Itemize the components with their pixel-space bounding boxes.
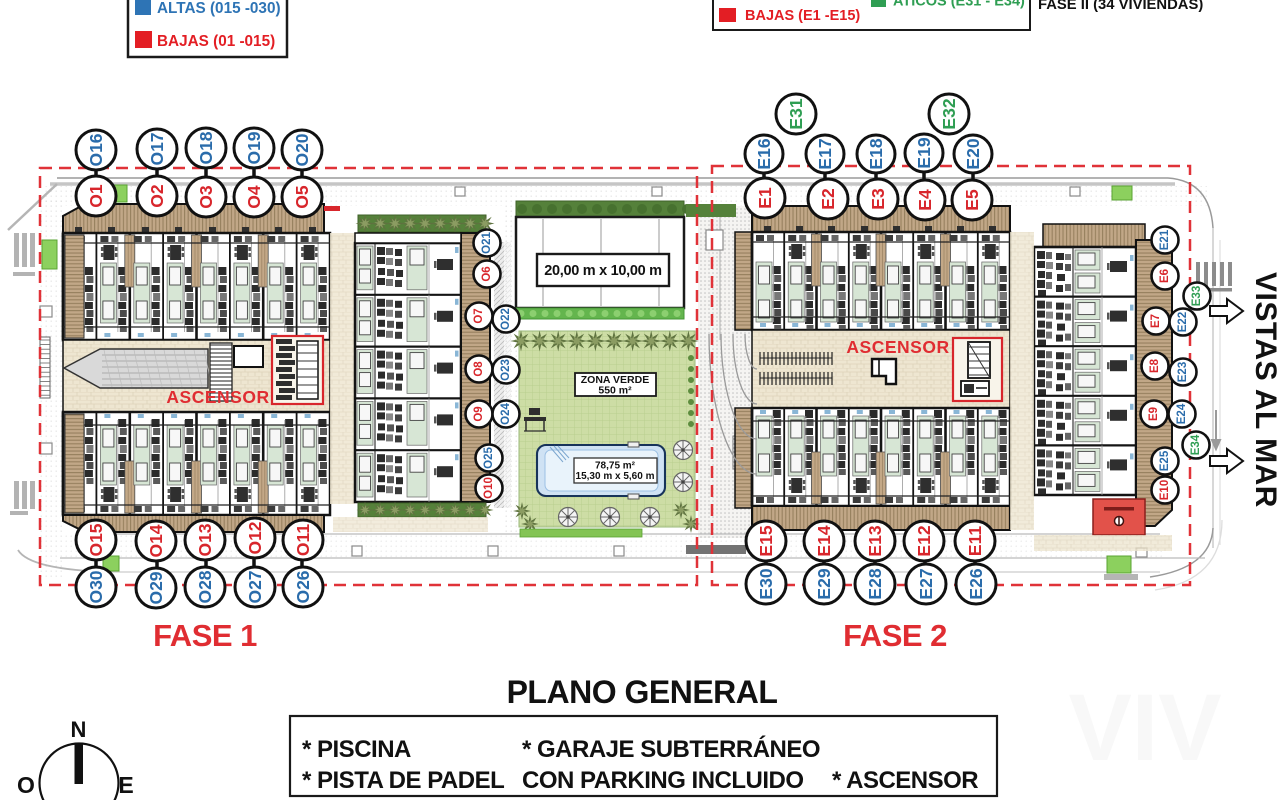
svg-text:PLANO GENERAL: PLANO GENERAL [507, 674, 778, 710]
svg-text:VISTAS AL MAR: VISTAS AL MAR [1249, 272, 1280, 508]
svg-text:E17: E17 [815, 138, 835, 169]
svg-text:E3: E3 [868, 188, 888, 210]
svg-text:O25: O25 [483, 447, 495, 469]
svg-text:* PISCINA: * PISCINA [302, 736, 411, 763]
svg-text:E4: E4 [915, 189, 935, 211]
svg-text:BAJAS (E1 -E15): BAJAS (E1 -E15) [745, 8, 860, 24]
svg-text:O5: O5 [292, 185, 312, 209]
svg-text:E27: E27 [916, 568, 936, 599]
svg-text:E23: E23 [1177, 362, 1189, 382]
svg-text:20,00 m x 10,00 m: 20,00 m x 10,00 m [544, 263, 661, 279]
svg-text:ATICOS (E31 - E34): ATICOS (E31 - E34) [893, 0, 1025, 10]
svg-text:O22: O22 [500, 308, 512, 330]
svg-text:O26: O26 [293, 570, 313, 603]
svg-text:E28: E28 [865, 568, 885, 599]
svg-text:O20: O20 [292, 133, 312, 166]
svg-text:O7: O7 [473, 308, 485, 323]
svg-text:E8: E8 [1149, 358, 1161, 373]
svg-text:O13: O13 [195, 523, 215, 556]
svg-text:FASE II (34 VIVIENDAS): FASE II (34 VIVIENDAS) [1038, 0, 1203, 13]
svg-text:E16: E16 [754, 138, 774, 169]
svg-text:E10: E10 [1159, 480, 1171, 500]
svg-text:E25: E25 [1159, 450, 1171, 471]
svg-text:O1: O1 [86, 184, 106, 208]
svg-text:15,30 m x 5,60 m: 15,30 m x 5,60 m [576, 471, 655, 482]
svg-text:E6: E6 [1159, 269, 1171, 283]
svg-text:O17: O17 [147, 132, 167, 165]
svg-text:ASCENSOR: ASCENSOR [846, 337, 949, 357]
svg-text:O8: O8 [473, 361, 485, 377]
svg-text:O6: O6 [481, 266, 493, 281]
svg-text:E29: E29 [814, 568, 834, 599]
svg-text:O24: O24 [500, 403, 512, 425]
svg-text:E9: E9 [1148, 407, 1160, 421]
svg-text:E15: E15 [756, 525, 776, 556]
svg-text:E11: E11 [965, 526, 985, 556]
svg-text:E18: E18 [866, 138, 886, 169]
svg-text:E21: E21 [1159, 229, 1171, 250]
svg-text:O10: O10 [483, 477, 495, 499]
svg-text:O19: O19 [244, 131, 264, 164]
svg-text:ASCENSOR: ASCENSOR [166, 387, 269, 407]
svg-text:E34: E34 [1190, 434, 1202, 455]
svg-text:O14: O14 [146, 524, 166, 557]
svg-text:E22: E22 [1177, 312, 1189, 332]
svg-text:O4: O4 [244, 185, 264, 209]
svg-text:O18: O18 [196, 131, 216, 164]
svg-text:E7: E7 [1150, 314, 1162, 328]
svg-text:E5: E5 [962, 189, 982, 211]
svg-text:O29: O29 [146, 571, 166, 604]
svg-text:O2: O2 [147, 184, 167, 208]
svg-text:E24: E24 [1176, 403, 1188, 424]
svg-text:O11: O11 [293, 524, 313, 556]
svg-text:E14: E14 [814, 525, 834, 556]
svg-text:CON PARKING INCLUIDO: CON PARKING INCLUIDO [522, 767, 804, 794]
svg-text:78,75 m²: 78,75 m² [595, 461, 636, 472]
svg-text:* GARAJE SUBTERRÁNEO: * GARAJE SUBTERRÁNEO [522, 735, 820, 763]
svg-text:O30: O30 [86, 570, 106, 603]
svg-text:O27: O27 [245, 570, 265, 603]
svg-text:550 m²: 550 m² [598, 385, 632, 397]
svg-text:E31: E31 [786, 98, 806, 129]
svg-text:VIV: VIV [1068, 675, 1221, 781]
svg-text:O28: O28 [195, 570, 215, 603]
svg-text:E1: E1 [755, 187, 775, 209]
svg-text:FASE 1: FASE 1 [153, 618, 257, 653]
svg-text:O16: O16 [86, 133, 106, 166]
svg-text:E26: E26 [966, 568, 986, 599]
svg-text:O9: O9 [473, 406, 485, 421]
svg-text:* ASCENSOR: * ASCENSOR [832, 767, 978, 794]
svg-text:O15: O15 [86, 523, 106, 556]
svg-text:E13: E13 [865, 525, 885, 556]
svg-text:N: N [71, 717, 87, 742]
svg-text:O23: O23 [500, 359, 512, 381]
svg-text:ALTAS (015 -030): ALTAS (015 -030) [157, 0, 281, 17]
svg-text:FASE 2: FASE 2 [843, 618, 947, 653]
svg-text:E19: E19 [914, 137, 934, 168]
svg-text:E2: E2 [818, 188, 838, 210]
svg-text:BAJAS (01 -015): BAJAS (01 -015) [157, 33, 275, 50]
svg-text:O21: O21 [481, 232, 493, 254]
svg-text:O3: O3 [196, 185, 216, 209]
svg-text:E30: E30 [756, 568, 776, 599]
svg-text:E: E [118, 772, 133, 798]
svg-text:O12: O12 [245, 521, 265, 554]
svg-text:O: O [17, 772, 35, 798]
svg-text:* PISTA DE PADEL: * PISTA DE PADEL [302, 767, 504, 794]
svg-text:E33: E33 [1191, 286, 1203, 306]
svg-text:E20: E20 [963, 138, 983, 169]
svg-text:E32: E32 [939, 98, 959, 129]
svg-text:E12: E12 [914, 525, 934, 556]
